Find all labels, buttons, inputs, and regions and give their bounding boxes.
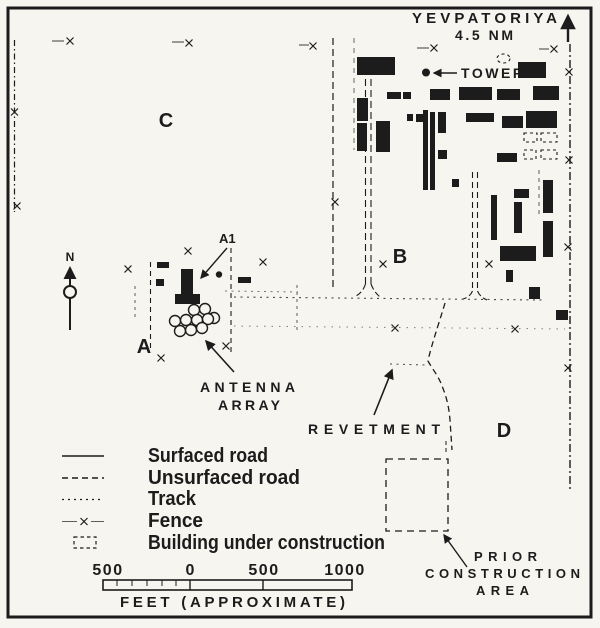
building <box>156 279 164 286</box>
legend-label-track: Track <box>148 488 197 510</box>
building <box>491 195 497 240</box>
legend-label-unsurfaced-road: Unsurfaced road <box>148 467 300 489</box>
legend-label-fence: Fence <box>148 510 203 532</box>
building <box>157 262 169 268</box>
legend-label-surfaced-road: Surfaced road <box>148 445 268 467</box>
building <box>376 121 390 152</box>
building <box>423 110 428 190</box>
building <box>533 86 559 100</box>
building <box>506 270 513 282</box>
antenna-circle <box>189 305 200 316</box>
building <box>438 150 447 159</box>
building <box>403 92 411 99</box>
scale-tick-1000: 1000 <box>324 562 366 579</box>
building <box>357 57 395 75</box>
building <box>387 92 401 99</box>
building <box>238 277 251 283</box>
legend-label-building-under-construction: Building under construction <box>148 532 385 554</box>
area-label-b: B <box>393 246 407 268</box>
scale-tick-500-right: 500 <box>248 562 279 579</box>
area-label-d: D <box>497 420 511 442</box>
building <box>514 189 529 198</box>
scale-tick-0: 0 <box>186 562 195 579</box>
building <box>543 180 553 213</box>
site-map-svg: N YEVPATORIYA 4.5 NM TOWER C B A D A1 AN… <box>0 0 600 628</box>
compass-ring <box>64 286 76 298</box>
tower-dot <box>422 69 430 77</box>
antenna-circle <box>181 315 192 326</box>
building <box>438 112 446 133</box>
antenna-circle <box>170 316 181 327</box>
north-label: N <box>66 250 75 264</box>
antenna-circle <box>175 326 186 337</box>
small-structure-dot <box>216 271 222 277</box>
antenna-circle <box>200 304 211 315</box>
building <box>502 116 523 128</box>
building <box>357 123 367 151</box>
area-label-c: C <box>159 110 173 132</box>
building <box>497 153 517 162</box>
antenna-circle <box>186 325 197 336</box>
building <box>529 287 540 299</box>
map-canvas: N YEVPATORIYA 4.5 NM TOWER C B A D A1 AN… <box>0 0 600 628</box>
building <box>430 112 435 190</box>
building <box>514 202 522 233</box>
building <box>556 310 568 320</box>
antenna-array-label-2: ARRAY <box>218 397 281 413</box>
building <box>497 89 520 100</box>
building <box>526 111 557 128</box>
antenna-circle <box>197 323 208 334</box>
scale-tick-500-left: 500 <box>92 562 123 579</box>
building <box>500 246 536 261</box>
area-label-a: A <box>137 336 151 358</box>
building <box>543 221 553 257</box>
building <box>452 179 459 187</box>
building <box>407 114 413 121</box>
building <box>430 89 450 100</box>
prior-area-label-2: CONSTRUCTION <box>425 566 580 581</box>
destination-label: YEVPATORIYA <box>412 10 557 27</box>
scale-bar-graphic <box>103 580 352 590</box>
revetment-label: REVETMENT <box>308 421 440 437</box>
building <box>357 98 368 121</box>
building <box>459 87 492 100</box>
building-label-a1: A1 <box>219 231 236 246</box>
building <box>466 113 494 122</box>
